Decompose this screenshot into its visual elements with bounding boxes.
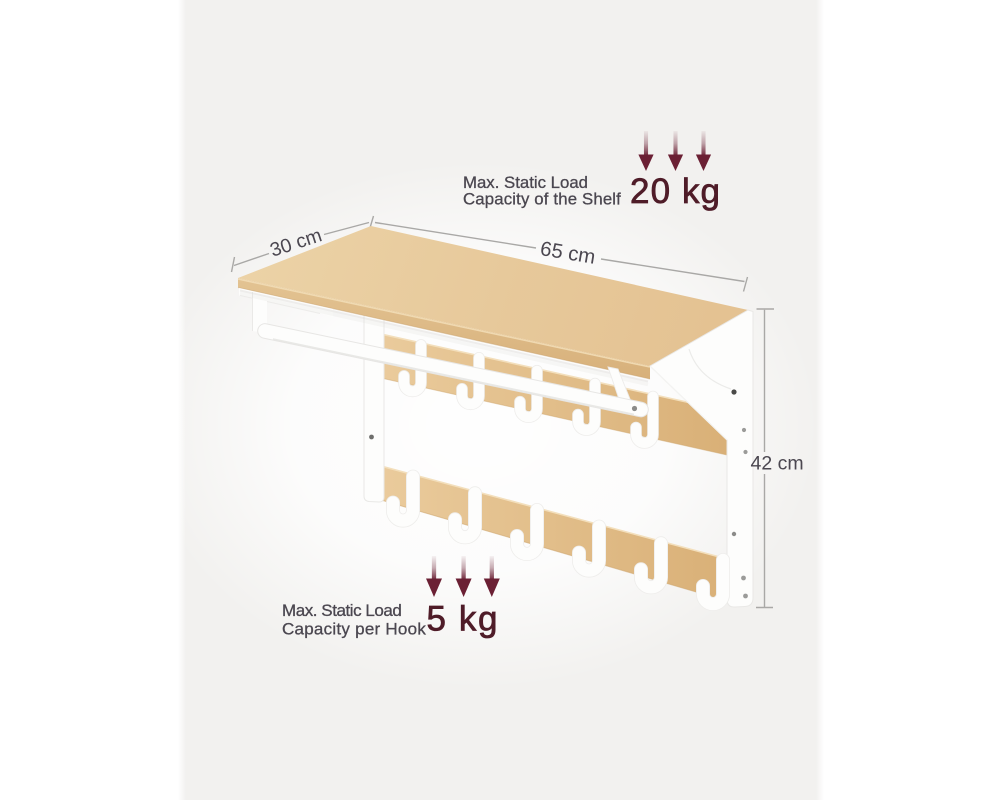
svg-text:Capacity of the Shelf: Capacity of the Shelf xyxy=(463,189,621,208)
svg-text:42 cm: 42 cm xyxy=(751,453,804,475)
svg-text:20 kg: 20 kg xyxy=(630,172,721,211)
svg-text:5 kg: 5 kg xyxy=(427,600,500,639)
svg-text:Capacity per Hook: Capacity per Hook xyxy=(282,620,426,639)
svg-text:Max. Static Load: Max. Static Load xyxy=(282,601,401,620)
